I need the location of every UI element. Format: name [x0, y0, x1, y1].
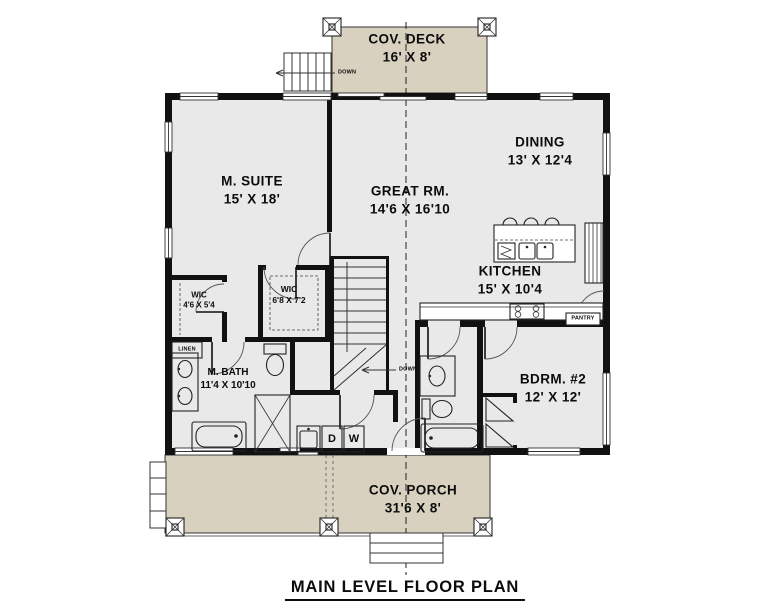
down-label-deck: DOWN: [338, 69, 356, 76]
post-icon: [166, 518, 184, 536]
porch-side-steps: [150, 462, 166, 528]
entry-door-opening: [387, 448, 425, 455]
floor-plan-drawing: [0, 0, 768, 614]
plan-title: MAIN LEVEL FLOOR PLAN: [285, 578, 525, 601]
room-label-wic-small: WIC4'6 X 5'4: [183, 291, 214, 312]
room-label-dining: DINING13' X 12'4: [508, 133, 572, 168]
deck-sliding-door: [338, 93, 384, 96]
dryer-label: D: [328, 432, 336, 446]
floor-plan-page: COV. DECK16' X 8' M. SUITE15' X 18' GREA…: [0, 0, 768, 614]
room-label-cov-deck: COV. DECK16' X 8': [368, 30, 445, 65]
post-icon: [320, 518, 338, 536]
linen-label: LINEN: [178, 346, 196, 353]
room-label-wic-large: WIC6'8 X 7'2: [272, 284, 305, 306]
post-icon: [478, 18, 496, 36]
pantry-label: PANTRY: [571, 315, 594, 322]
room-label-bdrm2: BDRM. #212' X 12': [520, 370, 586, 405]
porch-steps: [370, 533, 443, 563]
deck-sliding-door: [380, 97, 426, 100]
post-icon: [474, 518, 492, 536]
down-label-stairs: DOWN: [399, 366, 417, 373]
room-label-m-bath: M. BATH11'4 X 10'10: [200, 366, 255, 392]
room-label-cov-porch: COV. PORCH31'6 X 8': [369, 481, 457, 516]
room-label-great-rm: GREAT RM.14'6 X 16'10: [370, 182, 450, 217]
deck-steps: [276, 53, 335, 91]
room-label-m-suite: M. SUITE15' X 18': [221, 172, 283, 207]
kitchen-island: [494, 218, 575, 262]
post-icon: [323, 18, 341, 36]
washer-label: W: [349, 432, 359, 446]
room-label-kitchen: KITCHEN15' X 10'4: [478, 262, 542, 297]
